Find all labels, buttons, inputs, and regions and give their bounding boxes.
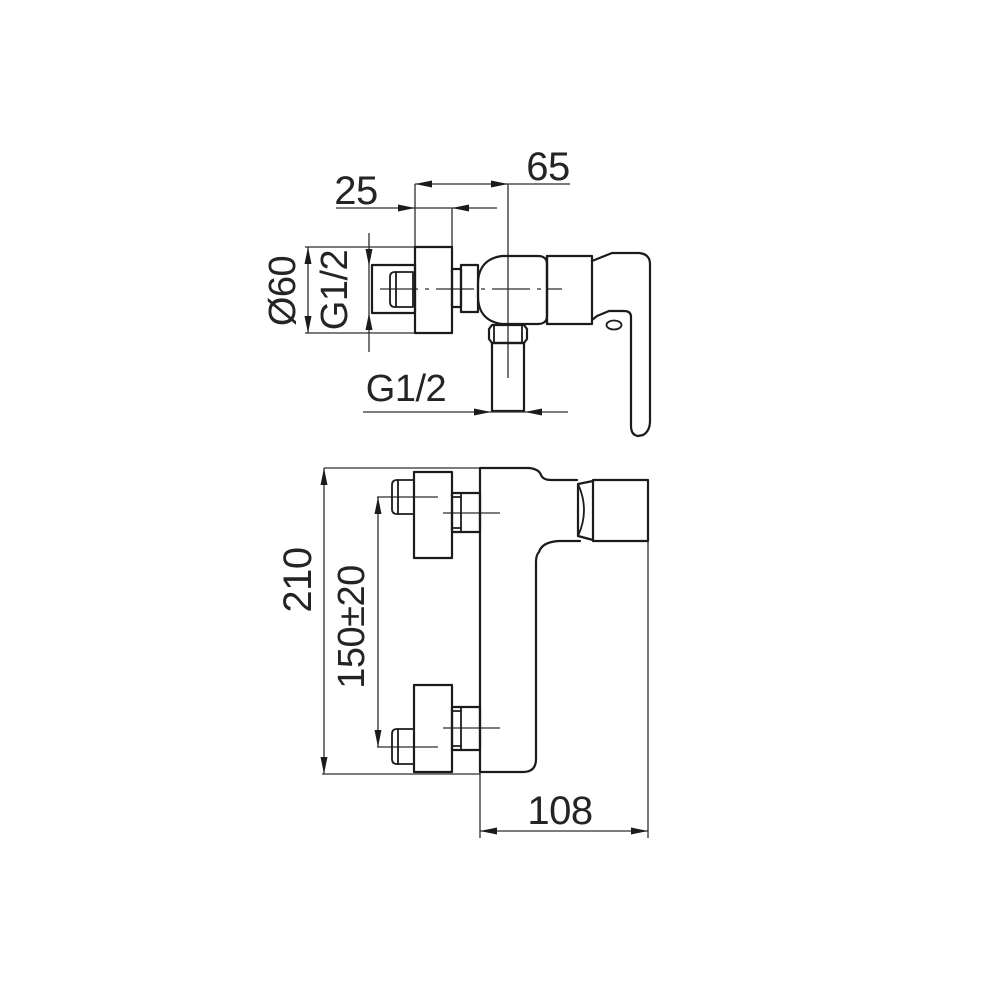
arrowhead-left-icon [480, 828, 497, 835]
arrowhead-down-icon [321, 757, 328, 774]
dim-65-label: 65 [526, 145, 570, 189]
dim-150: 150±20 [331, 497, 382, 747]
arrowhead-down-icon [305, 316, 312, 333]
upper-connection [392, 472, 480, 558]
handle-screw-cover [607, 321, 622, 330]
arrowhead-down-icon [375, 730, 382, 747]
arrowhead-up-icon [366, 313, 373, 330]
arrowhead-right-icon [631, 828, 648, 835]
technical-drawing: 65 25 Ø60 G1/2 [0, 0, 1000, 1000]
arrowhead-up-icon [305, 247, 312, 264]
wall-flange-top-view [415, 247, 452, 333]
spout-ring-bottom [578, 536, 593, 540]
handle-lever [592, 253, 650, 436]
arrowhead-right-icon [474, 409, 491, 416]
valve-body-cylinder [547, 256, 592, 324]
top-view: 65 25 Ø60 G1/2 [262, 145, 650, 436]
upper-flange [414, 472, 452, 558]
dim-65: 65 [415, 145, 570, 189]
arrowhead-right-icon [491, 181, 508, 188]
spout-ring-top [578, 481, 593, 484]
arrowhead-left-icon [415, 181, 432, 188]
spout-assembly [578, 480, 648, 541]
arrowhead-left-icon [525, 409, 542, 416]
front-view: 210 150±20 [276, 468, 648, 838]
dim-outlet-thread: G1/2 [363, 368, 568, 416]
dim-inlet-thread: G1/2 [314, 233, 373, 352]
dim-210-label: 210 [276, 547, 320, 612]
drawing-canvas: 65 25 Ø60 G1/2 [0, 0, 1000, 1000]
dim-25-label: 25 [334, 169, 378, 213]
dim-dia60-label: Ø60 [262, 256, 304, 326]
arrowhead-up-icon [321, 468, 328, 485]
arrowhead-down-icon [366, 249, 373, 266]
arrowhead-left-icon [452, 205, 469, 212]
body-connector-thread [452, 269, 461, 307]
dim-108-label: 108 [527, 789, 592, 833]
spout-block [593, 480, 648, 541]
dim-108: 108 [480, 541, 648, 838]
arrowhead-up-icon [375, 497, 382, 514]
cartridge-housing [478, 256, 547, 324]
dim-outlet-thread-label: G1/2 [366, 368, 446, 410]
dim-150-label: 150±20 [331, 565, 373, 689]
dim-inlet-thread-label: G1/2 [314, 250, 356, 330]
arrowhead-right-icon [398, 205, 415, 212]
dim-dia60: Ø60 [262, 247, 452, 333]
